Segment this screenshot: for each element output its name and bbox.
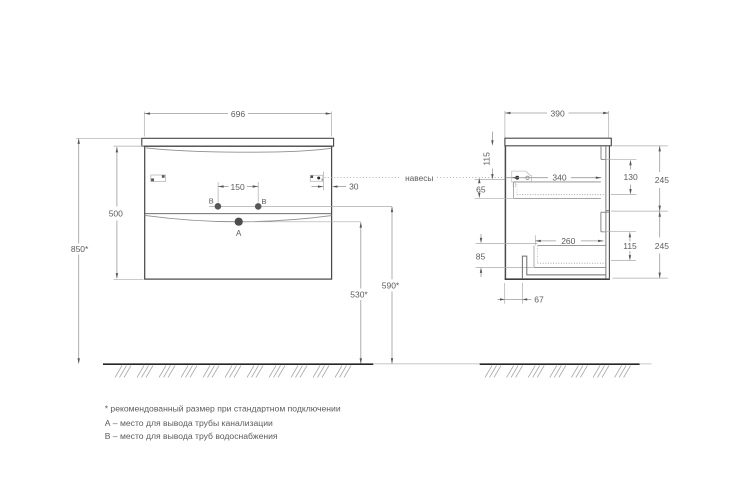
svg-text:115: 115 xyxy=(623,241,637,251)
svg-text:* рекомендованный размер при с: * рекомендованный размер при стандартном… xyxy=(105,404,341,414)
svg-text:А – место для вывода трубы кан: А – место для вывода трубы канализации xyxy=(105,418,273,428)
svg-text:590*: 590* xyxy=(382,281,400,291)
svg-text:245: 245 xyxy=(655,241,669,251)
svg-text:67: 67 xyxy=(534,294,544,304)
svg-text:30: 30 xyxy=(349,182,359,192)
svg-text:В – место для вывода труб водо: В – место для вывода труб водоснабжения xyxy=(105,431,278,441)
svg-text:390: 390 xyxy=(551,109,565,119)
svg-text:85: 85 xyxy=(476,252,486,262)
svg-text:150: 150 xyxy=(231,182,245,192)
svg-text:500: 500 xyxy=(109,208,123,218)
svg-text:130: 130 xyxy=(624,172,638,182)
svg-text:А: А xyxy=(236,229,242,238)
svg-text:260: 260 xyxy=(561,236,575,246)
svg-text:115: 115 xyxy=(482,152,492,166)
svg-text:696: 696 xyxy=(231,109,245,119)
svg-text:245: 245 xyxy=(655,175,669,185)
svg-text:850*: 850* xyxy=(71,244,89,254)
svg-text:340: 340 xyxy=(552,173,566,183)
svg-text:В: В xyxy=(261,197,266,206)
svg-text:530*: 530* xyxy=(350,289,368,299)
svg-text:В: В xyxy=(209,196,214,205)
svg-text:навесы: навесы xyxy=(405,173,433,183)
svg-text:65: 65 xyxy=(476,185,486,195)
